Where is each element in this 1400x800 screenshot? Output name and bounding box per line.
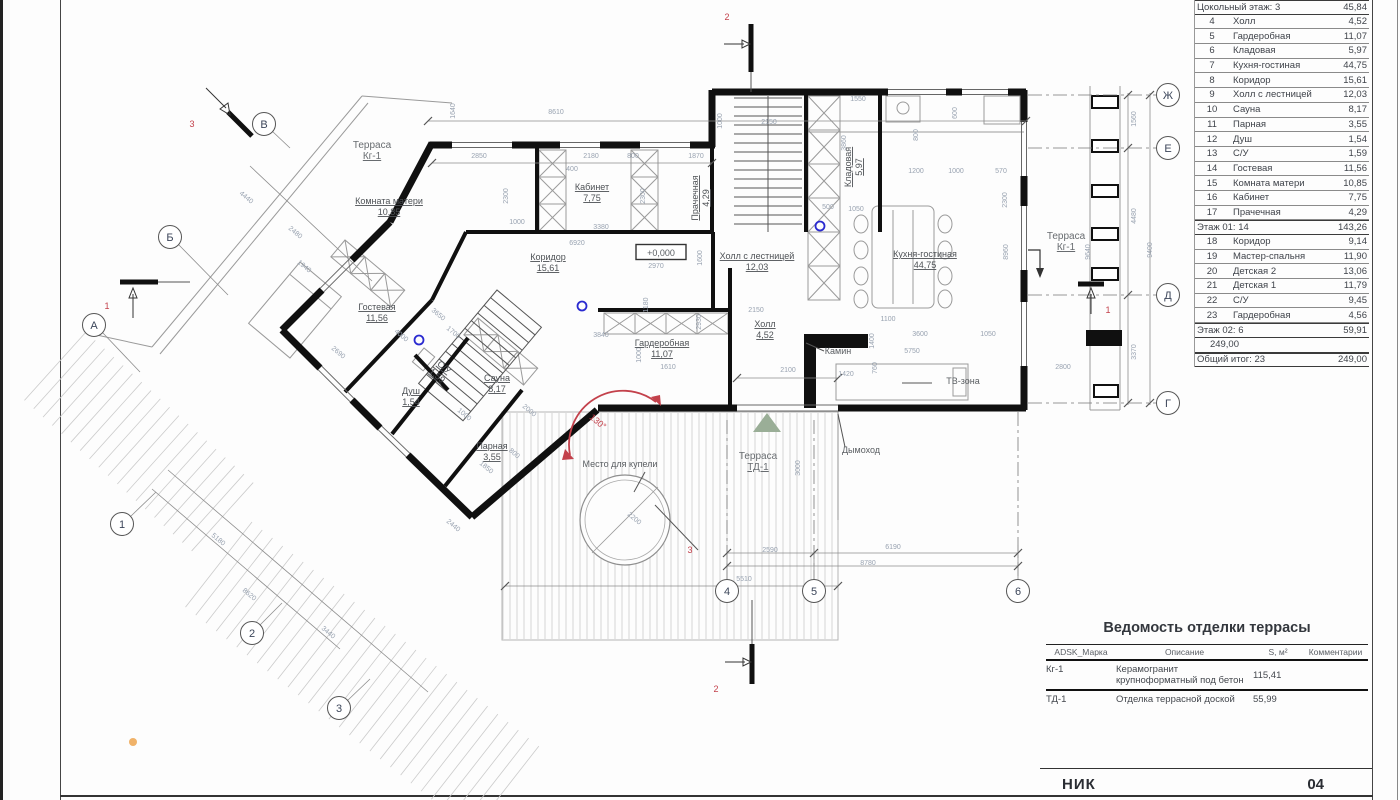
room-area: 11,90: [1323, 251, 1369, 262]
dimension-lines: [102, 91, 1154, 701]
room-area: 15,61: [1323, 75, 1369, 86]
dim-label: 2800: [1055, 364, 1071, 371]
schedule-row: 5 Гардеробная 11,07: [1195, 29, 1369, 44]
axis-label: В: [260, 119, 267, 131]
room-area: 8,17: [1323, 104, 1369, 115]
room-name: Холл с лестницей: [720, 251, 795, 261]
room-name: Кухня-гостиная: [893, 249, 957, 259]
hatch-line: [411, 698, 477, 783]
room-name: Кладовая: [1229, 45, 1323, 56]
dim-label: 1050: [980, 331, 996, 338]
dim-label: 8620: [241, 587, 258, 602]
schedule-row: 6 Кладовая 5,97: [1195, 44, 1369, 59]
room-label: Гостевая11,56: [358, 302, 395, 323]
room-label: Прачечная4,29: [690, 175, 711, 220]
hatch-line: [421, 706, 487, 791]
schedule-row: 7 Кухня-гостиная 44,75: [1195, 59, 1369, 74]
axis-label: 2: [249, 628, 255, 640]
hatch-line: [370, 666, 436, 751]
group-area: 45,84: [1323, 2, 1369, 13]
dim-label: 800: [913, 129, 920, 141]
room-area: 4,56: [1323, 310, 1369, 321]
dim-label: 2590: [762, 547, 778, 554]
room-area: 11,07: [1323, 31, 1369, 42]
room-name: Сауна: [484, 373, 510, 383]
group-area: 143,26: [1323, 222, 1369, 233]
room-number: 8: [1195, 75, 1229, 86]
room-number: 22: [1195, 295, 1229, 306]
axis-label: Б: [166, 232, 173, 244]
dim-label: 2150: [761, 119, 777, 126]
hatch-line: [360, 658, 426, 743]
room-label: Холл4,52: [754, 319, 775, 340]
dim-label: 800: [627, 153, 639, 160]
room-area: 10,85: [1323, 178, 1369, 189]
dim-label: 570: [995, 168, 1007, 175]
group-label: Этаж 01: 14: [1195, 222, 1323, 233]
schedule-row: 4 Холл 4,52: [1195, 15, 1369, 30]
project-name: НИК: [1062, 776, 1096, 793]
room-name: Коридор: [1229, 236, 1323, 247]
windows: [318, 90, 1026, 457]
dim-label: 3840: [593, 332, 609, 339]
hatch-line: [52, 357, 114, 425]
room-label: Коридор15,61: [530, 252, 566, 273]
dim-label: 2300: [503, 188, 510, 204]
section-number: 1: [104, 301, 109, 311]
section-number: 2: [724, 12, 729, 22]
schedule-row: 19 Мастер-спальня 11,90: [1195, 250, 1369, 265]
dim-label: 1870: [688, 153, 704, 160]
terrace-hatch: [24, 332, 832, 800]
finish-desc: Отделка террасной доской: [1116, 694, 1253, 705]
schedule-row: 23 Гардеробная 4,56: [1195, 308, 1369, 323]
dim-label: 2000: [521, 403, 538, 418]
hatch-line: [257, 578, 323, 663]
angle-label: 130°: [588, 412, 609, 432]
room-number: 5: [1195, 31, 1229, 42]
dim-label: 500: [822, 204, 834, 211]
room-area: 7,75: [583, 193, 601, 203]
room-name: Гардеробная: [635, 338, 690, 348]
room-name: Прачечная: [690, 175, 700, 220]
schedule-row: 9 Холл с лестницей 12,03: [1195, 88, 1369, 103]
group-label: Общий итог: 23: [1195, 354, 1323, 365]
room-area: 4,52: [1323, 16, 1369, 27]
hatch-line: [288, 602, 354, 687]
room-area: 1,59: [1323, 148, 1369, 159]
room-area: 1,54: [1323, 134, 1369, 145]
room-name: Терраса: [1047, 231, 1086, 242]
dim-label: 2440: [445, 518, 462, 533]
room-area: 5,97: [854, 158, 864, 176]
dim-label: 6190: [885, 544, 901, 551]
room-label: Сауна8,17: [484, 373, 510, 394]
hot-tub: [580, 475, 670, 565]
hatch-line: [117, 416, 179, 484]
hatch-line: [380, 674, 446, 759]
axis-label: 3: [336, 703, 342, 715]
hatch-line: [99, 399, 161, 467]
dim-label: 1000: [636, 347, 643, 363]
room-area: Кг-1: [1057, 242, 1076, 253]
room-name: Душ: [402, 386, 420, 396]
room-label: Душ1,54: [402, 386, 420, 407]
dim-label: 1420: [838, 371, 854, 378]
dim-label: 2690: [330, 345, 347, 360]
finish-mark: ТД-1: [1046, 694, 1116, 705]
finish-area: 55,99: [1253, 694, 1303, 705]
sheet-number: 04: [1307, 776, 1324, 793]
room-area: 11,56: [1323, 163, 1369, 174]
dim-label: 2180: [583, 153, 599, 160]
room-number: 6: [1195, 45, 1229, 56]
schedule-row: 13 С/У 1,59: [1195, 147, 1369, 162]
finish-desc: Керамогранит крупноформатный под бетон: [1116, 664, 1253, 686]
dim-label: 8780: [860, 560, 876, 567]
finish-mark: Кг-1: [1046, 664, 1116, 675]
section-number: 3: [687, 545, 692, 555]
room-label: Кладовая5,97: [843, 147, 864, 187]
schedule-summary-row: 249,00: [1195, 338, 1369, 353]
dim-label: 2300: [640, 188, 647, 204]
room-name: Коридор: [530, 252, 566, 262]
dim-label: 400: [566, 166, 578, 173]
hatch-line: [108, 407, 170, 475]
schedule-row: 18 Коридор 9,14: [1195, 235, 1369, 250]
hatch-line: [164, 457, 226, 525]
dim-label: 1550: [850, 96, 866, 103]
room-area: 13,06: [1323, 266, 1369, 277]
room-area: Кг-1: [363, 151, 382, 162]
room-area: 4,29: [1323, 207, 1369, 218]
terrace-columns: [1092, 96, 1118, 397]
room-label: Кабинет7,75: [575, 182, 609, 203]
hatch-line: [43, 349, 105, 417]
room-name: Прачечная: [1229, 207, 1323, 218]
room-name: Комната матери: [355, 196, 423, 206]
room-name: Холл: [754, 319, 775, 329]
room-area: 12,03: [1323, 89, 1369, 100]
dim-label: 1610: [660, 364, 676, 371]
dim-label: 1180: [643, 297, 650, 312]
dim-label: 2100: [780, 367, 796, 374]
terrace-table-title: Ведомость отделки террасы: [1046, 620, 1368, 636]
dim-label: 9640: [1085, 244, 1092, 260]
hatch-line: [24, 332, 86, 400]
header-mark: ADSK_Марка: [1046, 647, 1116, 657]
room-number: 15: [1195, 178, 1229, 189]
dim-label: 2850: [471, 153, 487, 160]
room-area: 3,55: [483, 452, 501, 462]
room-number: 9: [1195, 89, 1229, 100]
dim-label: 1600: [697, 250, 704, 266]
dim-label: 1100: [880, 316, 895, 323]
room-area: 12,03: [746, 262, 769, 272]
hatch-line: [484, 335, 518, 369]
dim-label: 3370: [1131, 344, 1138, 360]
room-area: 4,29: [701, 189, 711, 207]
room-name: Холл с лестницей: [1229, 89, 1323, 100]
terrace-finish-table: Ведомость отделки террасы ADSK_Марка Опи…: [1046, 620, 1368, 708]
room-number: 16: [1195, 192, 1229, 203]
room-number: 12: [1195, 134, 1229, 145]
room-number: 18: [1195, 236, 1229, 247]
room-label: ТеррасаКг-1: [1047, 231, 1086, 253]
room-number: 23: [1195, 310, 1229, 321]
room-area: 9,45: [1323, 295, 1369, 306]
terrace-table-header: ADSK_Марка Описание S, м² Комментарии: [1046, 644, 1368, 661]
hatch-line: [173, 466, 235, 534]
dim-label: 1050: [848, 206, 864, 213]
room-area: 44,75: [1323, 60, 1369, 71]
room-name: Комната матери: [1229, 178, 1323, 189]
schedule-row: 22 С/У 9,45: [1195, 294, 1369, 309]
hatch-line: [452, 730, 518, 800]
section-number: 2: [713, 684, 718, 694]
room-name: Детская 1: [1229, 280, 1323, 291]
room-number: 21: [1195, 280, 1229, 291]
title-block: НИК 04: [1040, 768, 1372, 797]
dim-label: 1640: [450, 103, 457, 119]
hatch-line: [472, 746, 538, 800]
hatch-line: [62, 365, 124, 433]
schedule-row: 10 Сауна 8,17: [1195, 103, 1369, 118]
schedule-summary-row: Этаж 01: 14 143,26: [1195, 220, 1369, 235]
schedule-row: 14 Гостевая 11,56: [1195, 162, 1369, 177]
finish-area: 115,41: [1253, 670, 1303, 681]
group-label: Этаж 02: 6: [1195, 325, 1323, 336]
axis-label: Д: [1164, 290, 1172, 302]
entry-arrow: [753, 413, 781, 432]
hatch-line: [89, 391, 151, 459]
axis-label: 4: [724, 586, 730, 598]
schedule-row: 17 Прачечная 4,29: [1195, 206, 1369, 221]
hatch-line: [80, 382, 142, 450]
dim-label: 3380: [593, 224, 609, 231]
plan-annotation: Камин: [825, 346, 851, 356]
group-area: 59,91: [1323, 325, 1369, 336]
axis-label: Е: [1164, 143, 1171, 155]
room-area: 11,79: [1323, 280, 1369, 291]
dim-label: 1000: [948, 168, 964, 175]
dim-label: 6920: [569, 240, 585, 247]
room-name: Гостевая: [358, 302, 395, 312]
dim-label: 760: [872, 362, 879, 374]
room-label: ТеррасаТД-1: [739, 451, 778, 473]
dimension-labels: 8610164028502180800187040010003380230023…: [210, 96, 1154, 641]
hatch-line: [442, 722, 508, 800]
room-label: Комната матери10,85: [355, 196, 423, 217]
room-name: Кабинет: [575, 182, 609, 192]
terrace-table-row: ТД-1 Отделка террасной доской 55,99: [1046, 691, 1368, 708]
dim-label: 4440: [238, 190, 255, 205]
dim-label: 5750: [904, 348, 920, 355]
dim-label: 1940: [296, 259, 313, 274]
room-number: 17: [1195, 207, 1229, 218]
dim-label: 3600: [912, 331, 928, 338]
schedule-row: 12 Душ 1,54: [1195, 132, 1369, 147]
schedule-row: 15 Комната матери 10,85: [1195, 176, 1369, 191]
dim-label: 1700: [445, 325, 462, 340]
dim-label: 4480: [1131, 208, 1138, 224]
room-name: Парная: [1229, 119, 1323, 130]
header-area: S, м²: [1253, 647, 1303, 657]
dim-label: 2480: [287, 225, 304, 240]
hatch-line: [71, 374, 133, 442]
room-area: 11,07: [651, 349, 673, 359]
room-number: 11: [1195, 119, 1229, 130]
section-number: 1: [1105, 305, 1110, 315]
dim-label: 5510: [736, 576, 752, 583]
plan-annotation: Место для купели: [583, 459, 658, 469]
room-name: Терраса: [739, 451, 778, 462]
terrace-table-row: Кг-1 Керамогранит крупноформатный под бе…: [1046, 661, 1368, 691]
section-number-labels: 221331: [104, 12, 1110, 694]
axis-label: Ж: [1163, 90, 1173, 102]
dim-label: 1200: [908, 168, 924, 175]
dim-label: 9400: [1147, 242, 1154, 258]
room-labels: ТеррасаКг-1Комната матери10,85Кабинет7,7…: [353, 140, 1086, 473]
room-name: Холл: [1229, 16, 1323, 27]
room-number: 13: [1195, 148, 1229, 159]
section-number: 3: [189, 119, 194, 129]
room-name: Мастер-спальня: [1229, 251, 1323, 262]
room-number: 10: [1195, 104, 1229, 115]
plan-annotation: +0,000: [647, 248, 675, 258]
room-name: С/У: [1229, 148, 1323, 159]
room-label: ТеррасаКг-1: [353, 140, 392, 162]
axis-label: 6: [1015, 586, 1021, 598]
schedule-summary-row: Этаж 02: 6 59,91: [1195, 323, 1369, 338]
dim-label: 8960: [1003, 244, 1010, 260]
room-name: Душ: [1229, 134, 1323, 145]
dim-label: 8610: [548, 109, 564, 116]
schedule-summary-row: Общий итог: 23 249,00: [1195, 353, 1369, 368]
drawing-sheet: { "title_block": {"project": "НИК", "she…: [0, 0, 1400, 800]
hatch-line: [431, 714, 497, 799]
room-area: 11,56: [366, 313, 388, 323]
schedule-row: 11 Парная 3,55: [1195, 118, 1369, 133]
schedule-row: 20 Детская 2 13,06: [1195, 264, 1369, 279]
room-name: Гардеробная: [1229, 31, 1323, 42]
room-number: 4: [1195, 16, 1229, 27]
dim-label: 800: [507, 447, 521, 460]
hatch-line: [154, 449, 216, 517]
room-schedule-table: 3 Котельная 3,81Цокольный этаж: 3 45,844…: [1194, 0, 1369, 367]
plan-annotation: Дымоход: [842, 445, 881, 455]
room-area: 3,55: [1323, 119, 1369, 130]
schedule-row: 21 Детская 1 11,79: [1195, 279, 1369, 294]
dim-label: 1000: [717, 113, 724, 129]
room-name: С/У: [1229, 295, 1323, 306]
room-label: Кухня-гостиная44,75: [893, 249, 957, 270]
room-area: 9,14: [1323, 236, 1369, 247]
hatch-line: [319, 626, 385, 711]
axis-label: 1: [119, 519, 125, 531]
room-name: Гардеробная: [1229, 310, 1323, 321]
room-area: ТД-1: [747, 462, 769, 473]
group-area: 249,00: [1195, 339, 1241, 350]
dim-label: 3650: [430, 307, 447, 322]
dim-label: 3000: [795, 460, 802, 476]
hatch-line: [34, 340, 96, 408]
dim-label: 600: [952, 107, 959, 119]
hatch-line: [351, 257, 385, 291]
dim-label: 1000: [509, 219, 525, 226]
room-name: Гостевая: [1229, 163, 1323, 174]
hatch-line: [136, 432, 198, 500]
hatch-line: [401, 690, 467, 775]
room-name: Кабинет: [1229, 192, 1323, 203]
room-number: 14: [1195, 163, 1229, 174]
plan-annotation: ТВ-зона: [946, 376, 980, 386]
axis-label: Г: [1165, 398, 1171, 410]
orange-dot: [129, 738, 137, 746]
header-comment: Комментарии: [1303, 647, 1368, 657]
header-desc: Описание: [1116, 647, 1253, 657]
room-area: 7,75: [1323, 192, 1369, 203]
hatch-line: [216, 546, 282, 631]
hatch-line: [390, 682, 456, 767]
dim-label: 2930: [696, 314, 703, 330]
axis-label: А: [90, 320, 98, 332]
room-area: 15,61: [537, 263, 560, 273]
dim-label: 2150: [748, 307, 764, 314]
room-name: Коридор: [1229, 75, 1323, 86]
group-area: 249,00: [1323, 354, 1369, 365]
dim-label: 2970: [648, 263, 664, 270]
axis-label: 5: [811, 586, 817, 598]
room-number: 19: [1195, 251, 1229, 262]
room-name: Сауна: [1229, 104, 1323, 115]
schedule-row: 8 Коридор 15,61: [1195, 73, 1369, 88]
schedule-row: 16 Кабинет 7,75: [1195, 191, 1369, 206]
dim-label: 1850: [478, 460, 495, 475]
room-name: Кладовая: [843, 147, 853, 187]
room-number: 20: [1195, 266, 1229, 277]
room-area: 44,75: [914, 260, 937, 270]
dim-label: 2300: [1002, 192, 1009, 208]
dim-label: 1560: [1131, 111, 1138, 127]
room-area: 8,17: [488, 384, 506, 394]
dim-label: 1400: [869, 333, 876, 349]
hatch-line: [298, 610, 364, 695]
room-name: Детская 2: [1229, 266, 1323, 277]
hatch-line: [145, 441, 207, 509]
room-name: Парная: [476, 441, 507, 451]
room-name: Кухня-гостиная: [1229, 60, 1323, 71]
hatch-line: [349, 650, 415, 735]
room-area: 5,97: [1323, 45, 1369, 56]
room-number: 7: [1195, 60, 1229, 71]
hatch-line: [127, 424, 189, 492]
group-label: Цокольный этаж: 3: [1195, 2, 1323, 13]
hatch-line: [196, 530, 262, 615]
room-area: 10,85: [378, 207, 401, 217]
room-area: 1,54: [402, 397, 420, 407]
room-name: Терраса: [353, 140, 392, 151]
room-area: 4,52: [756, 330, 774, 340]
schedule-summary-row: Цокольный этаж: 3 45,84: [1195, 0, 1369, 15]
